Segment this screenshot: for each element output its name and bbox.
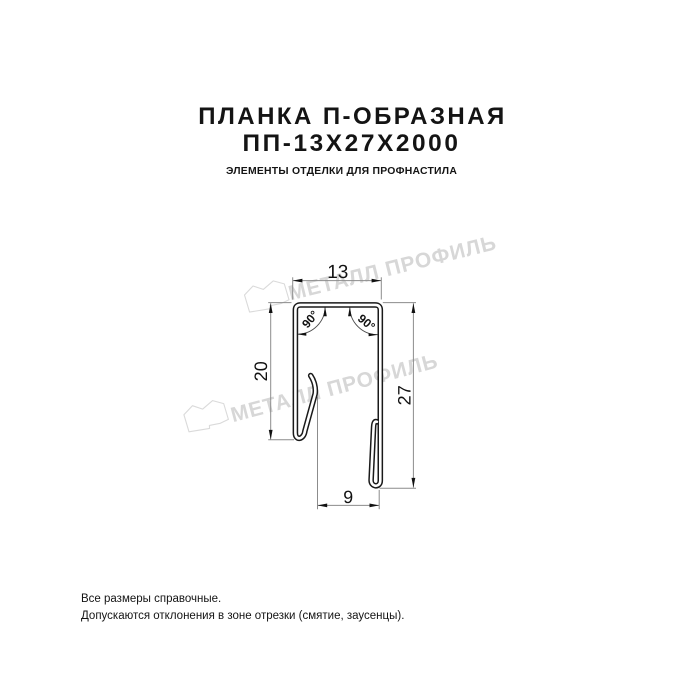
- svg-text:13: 13: [327, 262, 348, 283]
- svg-text:90°: 90°: [299, 308, 322, 331]
- svg-text:20: 20: [251, 361, 271, 381]
- svg-text:27: 27: [394, 385, 414, 405]
- svg-text:90°: 90°: [355, 311, 378, 334]
- svg-text:9: 9: [343, 487, 353, 507]
- svg-text:МЕТАЛЛ ПРОФИЛЬ: МЕТАЛЛ ПРОФИЛЬ: [286, 231, 499, 305]
